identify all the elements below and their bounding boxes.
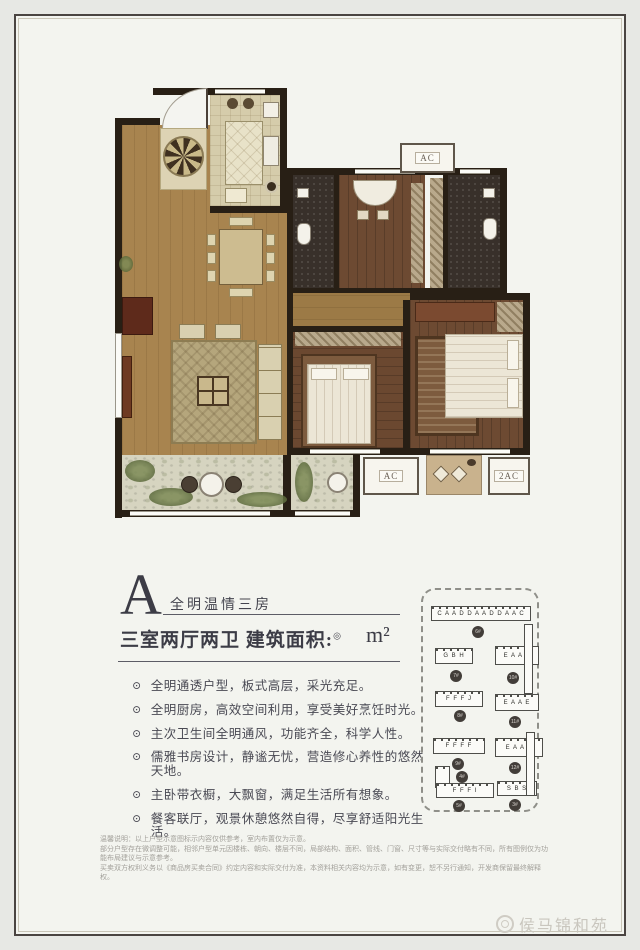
dining-chair [207, 270, 216, 282]
coffee-table [197, 376, 229, 406]
unit-type-letter: A [120, 566, 162, 624]
building-units: F F F J [446, 696, 472, 702]
spec-text: 三室两厅两卫 建筑面积: [120, 630, 333, 651]
toilet [297, 223, 311, 245]
feature-item: ⊙全明厨房，高效空间利用，享受美好烹饪时光。 [132, 704, 424, 718]
building-units: C A A D D A A D D A A C [437, 611, 524, 617]
building-number-badge: 12# [509, 762, 521, 774]
building-units: F F F I [453, 788, 478, 794]
balcony-stool [225, 476, 242, 493]
bullet-icon: ⊙ [132, 751, 142, 779]
piano-cabinet [122, 297, 153, 335]
balcony-stool [181, 476, 198, 493]
building-number-badge: 5# [453, 800, 465, 812]
balcony-plants [295, 462, 313, 502]
wall [115, 118, 122, 518]
bullet-icon: ⊙ [132, 728, 142, 742]
study-chair [357, 210, 369, 220]
wall [287, 175, 293, 455]
ac-label: AC [379, 470, 404, 482]
balcony-divider-wall [283, 455, 291, 512]
building-number-badge: 8# [454, 710, 466, 722]
feature-text: 儒雅书房设计，静谧无忧，营造修心养性的悠然天地。 [151, 751, 424, 779]
window [310, 449, 380, 454]
plant [119, 256, 133, 272]
washbasin [297, 188, 309, 198]
dining-chair [266, 270, 275, 282]
watermark-logo-icon [496, 915, 514, 933]
area-unit: m² [366, 622, 390, 648]
dining-chair [229, 217, 253, 226]
building-units: S B S [507, 786, 527, 792]
balcony-plants [125, 460, 155, 482]
feature-text: 全明通透户型，板式高层，采光充足。 [151, 680, 372, 694]
kitchen-sink [263, 102, 279, 118]
building: F F F F [433, 738, 485, 754]
ac-platform-bottom-left: AC [363, 457, 419, 495]
pillow [343, 368, 369, 380]
building-number-badge: 10# [507, 672, 519, 684]
watermark-text: 侯马锦和苑 [519, 912, 609, 936]
building: E A A E [495, 738, 543, 757]
building-number-badge: 3# [509, 799, 521, 811]
balcony-window [295, 511, 350, 516]
wall [210, 206, 287, 213]
pillow [507, 340, 519, 370]
armchair [215, 324, 241, 339]
dining-chair [266, 252, 275, 264]
building: G B H [435, 648, 473, 664]
balcony-table [327, 472, 348, 493]
bullet-icon: ⊙ [132, 789, 142, 803]
building-units: F F F F [446, 743, 473, 749]
feature-text: 全明厨房，高效空间利用，享受美好烹饪时光。 [151, 704, 424, 718]
bullet-icon: ⊙ [132, 680, 142, 694]
toilet [483, 218, 497, 240]
ac-label: 2AC [494, 470, 524, 482]
bedroom-1-wardrobe [295, 332, 401, 346]
dining-chair [207, 252, 216, 264]
feature-text: 主卧带衣橱，大飘窗，满足生活所有想象。 [151, 789, 398, 803]
building: F F F J [435, 691, 483, 707]
unit-tagline: 全明温情三房 [170, 594, 272, 614]
feature-item: ⊙主次卫生间全明通风，功能齐全，科学人性。 [132, 728, 424, 742]
bullet-icon: ⊙ [132, 704, 142, 718]
divider-line [163, 614, 400, 615]
disclaimer-line: 温馨说明：以上户型示意图标示内容仅供参考，室内布置仅为示意。 [100, 835, 550, 845]
disclaimer-line: 买卖双方权利义务以《商品房买卖合同》约定内容和实际交付为准，本资料相关内容均为示… [100, 864, 550, 883]
wall [403, 300, 410, 455]
tv-cabinet [122, 356, 132, 418]
building-number-badge: 6# [472, 626, 484, 638]
study-chair [377, 210, 389, 220]
disclaimer-line: 部分户型存在微调整可能，相邻户型单元因楼栋、朝向、楼层不同，局部结构、面积、管线… [100, 845, 550, 864]
building-number-badge: 4# [456, 771, 468, 783]
pot [265, 180, 278, 193]
pillow [311, 368, 337, 380]
fridge [263, 136, 279, 166]
armchair [179, 324, 205, 339]
feature-item: ⊙主卧带衣橱，大飘窗，满足生活所有想象。 [132, 789, 424, 803]
site-plan: C A A D D A A D D A A C 6# G B H 7# E A … [421, 588, 539, 812]
balcony-table [199, 472, 224, 497]
feature-list: ⊙全明通透户型，板式高层，采光充足。 ⊙全明厨房，高效空间利用，享受美好烹饪时光… [132, 680, 424, 850]
divider-line [118, 661, 400, 662]
building: C A A D D A A D D A A C [431, 606, 531, 621]
window [430, 449, 510, 454]
building: E A A E [495, 694, 539, 711]
foyer-medallion-rug [163, 136, 204, 177]
window [215, 89, 265, 94]
wall [500, 175, 507, 295]
bedroom-2-wardrobe [497, 302, 523, 332]
balcony-plants [237, 492, 287, 507]
building-wing [524, 624, 533, 694]
ac-platform-top: AC [400, 143, 455, 173]
building-units: E A A E [504, 700, 531, 706]
stove-burner [227, 98, 238, 109]
feature-text: 主次卫生间全明通风，功能齐全，科学人性。 [151, 728, 411, 742]
study-bookshelf [411, 183, 423, 283]
washbasin [483, 188, 495, 198]
building-wing [526, 732, 535, 796]
building-number-badge: 7# [450, 670, 462, 682]
feature-item: ⊙全明通透户型，板式高层，采光充足。 [132, 680, 424, 694]
spec-mark: ◎ [333, 631, 342, 641]
wall [353, 455, 360, 517]
balcony-window [130, 511, 270, 516]
floor-plan: AC AC 2AC [115, 88, 535, 530]
building: F F F I [436, 783, 494, 798]
feature-item: ⊙儒雅书房设计，静谧无忧，营造修心养性的悠然天地。 [132, 751, 424, 779]
building-number-badge: 11# [509, 716, 521, 728]
dining-chair [229, 288, 253, 297]
bay-window [115, 333, 122, 418]
unit-spec: 三室两厅两卫 建筑面积:◎ [120, 625, 342, 652]
wall [443, 175, 448, 290]
ac-label: AC [415, 152, 440, 164]
wall [523, 293, 530, 455]
watermark: 侯马锦和苑 [496, 912, 609, 936]
dining-chair [266, 234, 275, 246]
tray-item [467, 459, 476, 466]
flyer-page: AC AC 2AC A 全明温情三房 三室两厅两卫 建筑面积:◎ m² ⊙全明通… [0, 0, 640, 950]
kitchen-side-table [225, 188, 247, 203]
building-number-badge: 9# [452, 758, 464, 770]
window [460, 169, 490, 174]
disclaimer-text: 温馨说明：以上户型示意图标示内容仅供参考，室内布置仅为示意。 部分户型存在微调整… [100, 835, 550, 883]
wall [280, 88, 287, 213]
kitchen-island [225, 121, 263, 185]
wall [334, 175, 339, 290]
pillow [507, 378, 519, 408]
stove-burner [243, 98, 254, 109]
bedroom-2-dresser [415, 302, 495, 322]
building-units: G B H [443, 653, 464, 659]
dining-chair [207, 234, 216, 246]
sofa [258, 344, 282, 440]
ac-platform-bottom-right: 2AC [488, 457, 530, 495]
wall [410, 293, 523, 300]
dining-table [219, 229, 263, 285]
